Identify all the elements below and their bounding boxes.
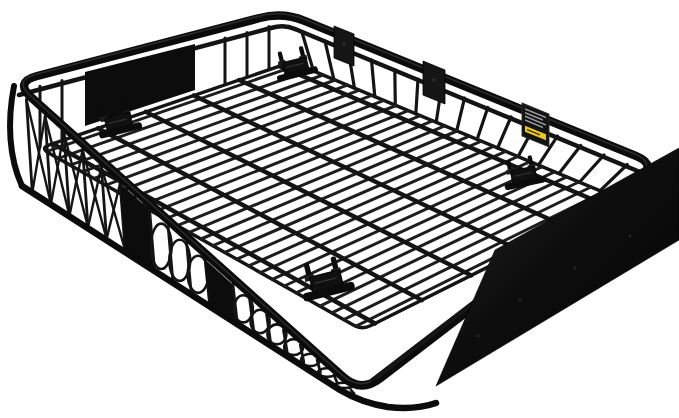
mounting-plate-1 bbox=[334, 26, 354, 66]
product-photo bbox=[0, 0, 679, 418]
mounting-plate-2 bbox=[423, 61, 445, 104]
cargo-basket-rack-image bbox=[0, 0, 679, 418]
